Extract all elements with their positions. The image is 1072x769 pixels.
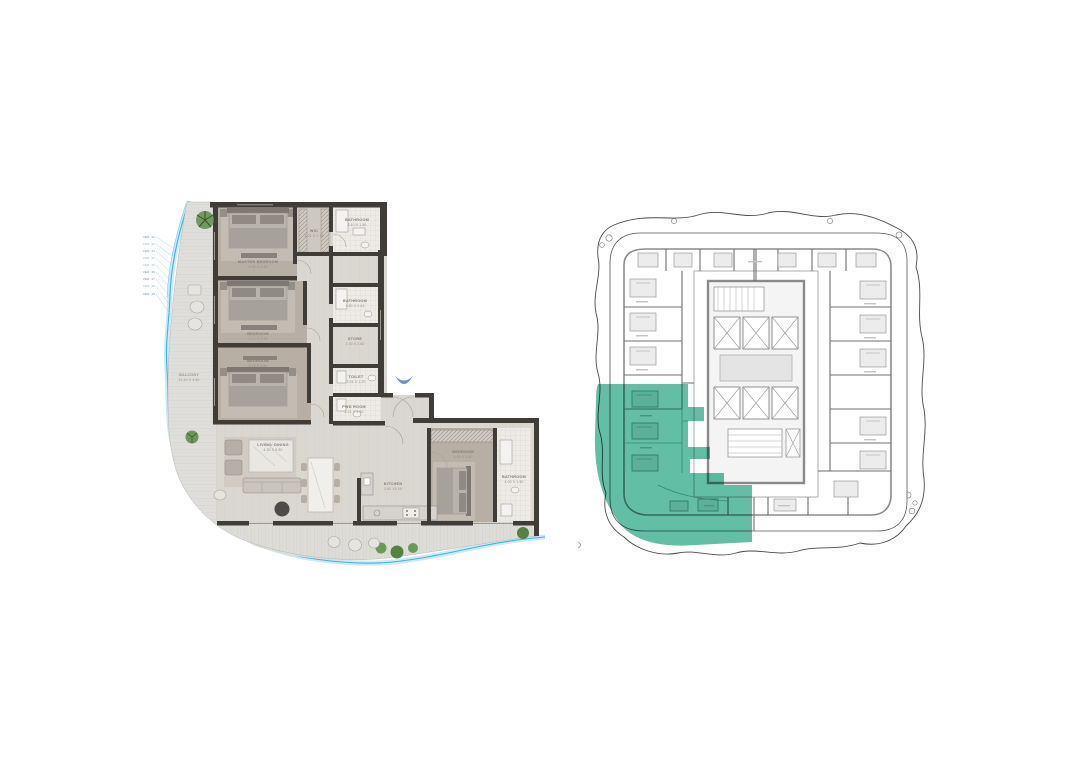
label-pwd-room: PWD ROOM: [342, 405, 366, 409]
unit-floor-plan: VER. 41 VER. 42 VER. 43 VER. 44 VER. 45 …: [125, 190, 550, 585]
label-wic: WIC: [310, 229, 318, 233]
label-bathroom1-dims: 3.10 X 1.80: [347, 223, 366, 227]
label-bedroom2: BEDROOM: [247, 332, 269, 336]
key-plan-core: [708, 281, 804, 483]
label-bedroom4-dims: 4.00 X 3.80: [453, 455, 472, 459]
ver-label-3: VER. 43: [143, 249, 155, 253]
label-bathroom1: BATHROOM: [345, 218, 369, 222]
bed-master: [220, 208, 295, 261]
label-bathroom3-dims: 4.00 X 1.50: [504, 480, 523, 484]
ver-label-4: VER. 44: [143, 256, 155, 260]
ver-label-1: VER. 41: [143, 235, 155, 239]
key-plan: [578, 195, 928, 572]
label-master-bedroom-dims: 3.95 X 4.10: [248, 265, 267, 269]
ver-label-2: VER. 42: [143, 242, 155, 246]
label-wic-dims: 2.01 X 1.75: [304, 234, 323, 238]
key-plan-drawing: [578, 195, 928, 567]
label-kitchen-dims: 3.60 X3.00: [384, 487, 402, 491]
palm-tree-icon: [196, 211, 214, 229]
unit-floor-plan-drawing: VER. 41 VER. 42 VER. 43 VER. 44 VER. 45 …: [125, 190, 550, 580]
label-bathroom2-dims: 1.80 X 2.62: [345, 304, 364, 308]
ver-label-7: VER. 47: [143, 277, 155, 281]
label-bathroom3: BATHROOM: [502, 475, 526, 479]
ver-label-5: VER. 45: [143, 263, 155, 267]
label-living-dining-dims: 4.30 X 6.80: [263, 448, 282, 452]
label-bedroom3-dims: 2.75 X 3.80: [248, 364, 267, 368]
ver-label-8: VER. 48: [143, 284, 155, 288]
label-living-dining: LIVING/ DINING: [257, 443, 289, 447]
bed-4: [433, 462, 475, 520]
label-toilet: TOILET: [349, 375, 364, 379]
bed-2: [220, 281, 295, 333]
label-store-dims: 2.00 X 2.60: [345, 342, 364, 346]
ver-label-9: VER. 49: [143, 292, 155, 296]
ver-label-6: VER. 46: [143, 270, 155, 274]
label-balcony-dims: 21.10 X 3.60: [178, 378, 199, 382]
floor-plan-page: VER. 41 VER. 42 VER. 43 VER. 44 VER. 45 …: [0, 0, 1072, 769]
label-bedroom3: BEDROOM: [247, 359, 269, 363]
label-store: STORE: [348, 337, 362, 341]
label-master-bedroom: MASTER BEDROOM: [238, 260, 278, 264]
label-balcony: BALCONY: [179, 373, 199, 377]
label-bedroom4: BEDROOM: [452, 450, 474, 454]
label-pwd-room-dims: 2.21 X 1.60: [344, 410, 363, 414]
label-toilet-dims: 2.04 X 1.20: [346, 380, 365, 384]
label-bathroom2: BATHROOM: [343, 299, 367, 303]
label-bedroom2-dims: 3.70 X 3.75: [248, 337, 267, 341]
label-kitchen: KITCHEN: [384, 482, 403, 486]
entry-marker-icon: [395, 376, 413, 384]
